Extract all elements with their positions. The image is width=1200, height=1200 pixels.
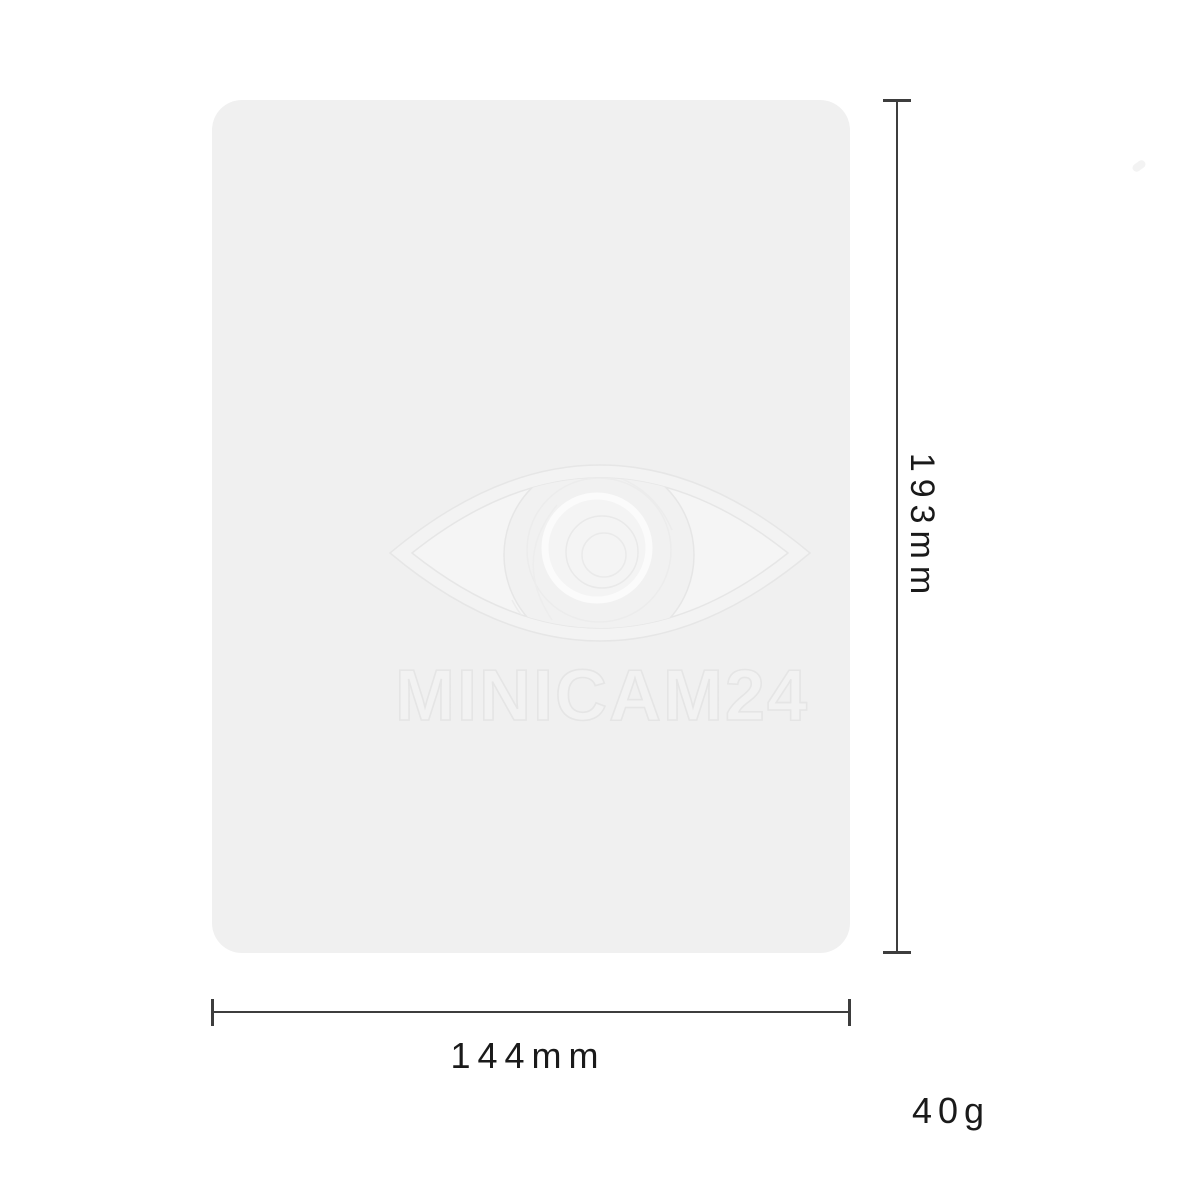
product-dimension-diagram: MINICAM24 193mm 144mm 40g: [0, 0, 1200, 1200]
watermark: MINICAM24: [212, 100, 850, 953]
height-dimension-cap-bottom: [883, 951, 911, 954]
product-panel: MINICAM24: [212, 100, 850, 953]
height-dimension-line: [896, 100, 898, 953]
width-dimension-cap-left: [211, 999, 214, 1026]
faint-artifact: [1131, 159, 1147, 174]
width-label: 144mm: [378, 1035, 678, 1077]
width-dimension-cap-right: [848, 999, 851, 1026]
height-dimension-cap-top: [883, 99, 911, 102]
height-label: 193mm: [902, 377, 942, 677]
eye-icon: [390, 460, 810, 650]
width-dimension-line: [212, 1011, 850, 1013]
weight-label: 40g: [912, 1090, 1092, 1132]
watermark-text: MINICAM24: [395, 656, 809, 736]
